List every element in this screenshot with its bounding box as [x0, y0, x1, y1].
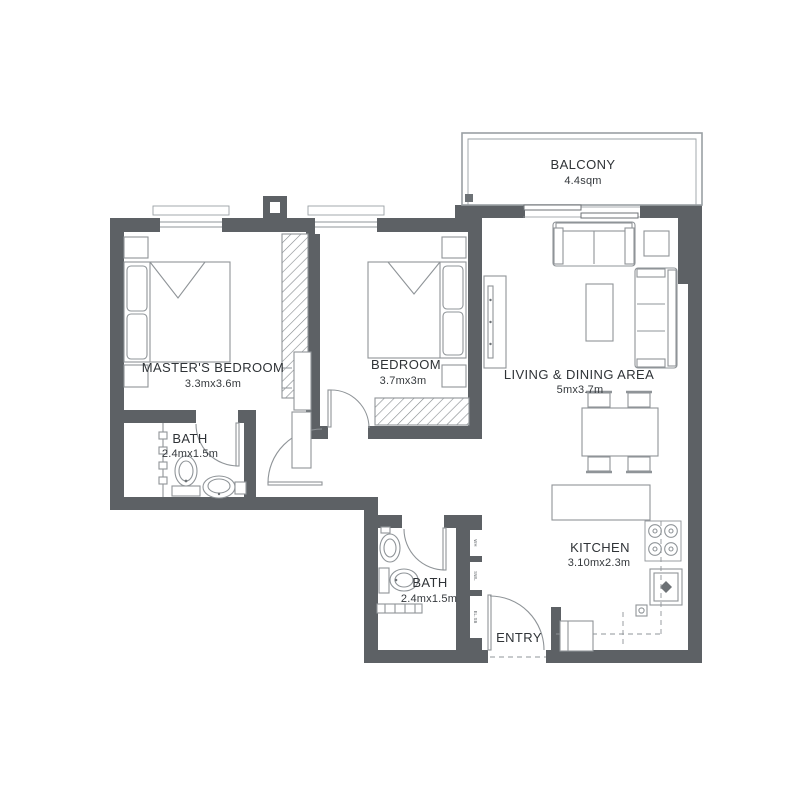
living-dining-size: 5mx3.7m [557, 384, 604, 396]
kitchen-size: 3.10mx2.3m [568, 557, 631, 569]
entry-door-swing [488, 595, 546, 657]
bath1-label: BATH [172, 431, 207, 446]
small-appliance [636, 605, 647, 616]
kitchen-sink-fixture [650, 569, 682, 605]
bedroom-wardrobe [375, 398, 469, 425]
utility-niches: WH SWL EL.SB [470, 530, 482, 638]
bedroom-label: BEDROOM [371, 357, 441, 372]
kitchen-label: KITCHEN [570, 540, 630, 555]
utility-label-1: WH [473, 539, 478, 546]
window-sill [153, 206, 229, 215]
two-seat-sofa [553, 222, 635, 266]
dining-chair [626, 392, 652, 407]
dining-set [582, 392, 658, 472]
sink-fixture [380, 527, 400, 562]
balcony-drain [465, 194, 473, 202]
floor-plan-canvas: WH SWL EL.SB [0, 0, 800, 800]
side-table [644, 231, 669, 256]
balcony-sliding-door [523, 205, 640, 218]
balcony-label: BALCONY [551, 157, 616, 172]
refrigerator [560, 621, 593, 651]
nightstand [442, 237, 466, 258]
window-sill [308, 206, 384, 215]
bath2-label: BATH [412, 575, 447, 590]
utility-label-2: SWL [473, 571, 478, 581]
toilet-fixture [172, 456, 200, 496]
stove-fixture [645, 521, 681, 561]
tv-unit [484, 276, 506, 368]
bedroom-window [315, 216, 377, 234]
bedroom-door-swing [328, 390, 369, 428]
nightstand [442, 365, 466, 387]
three-seat-sofa [635, 268, 677, 368]
dining-table [582, 408, 658, 456]
master-bedroom-label: MASTER'S BEDROOM [142, 360, 285, 375]
master-bedroom-furniture [124, 234, 311, 468]
bedroom-size: 3.7mx3m [380, 375, 427, 387]
bath2-size: 2.4mx1.5m [401, 593, 457, 605]
bath2-door-swing [404, 528, 446, 570]
bath1-size: 2.4mx1.5m [162, 448, 218, 460]
living-furniture [484, 222, 677, 368]
dining-chair [586, 457, 612, 472]
sink-fixture [203, 476, 246, 498]
dining-chair [626, 457, 652, 472]
balcony-size: 4.4sqm [564, 175, 601, 187]
master-bedroom-size: 3.3mx3.6m [185, 378, 241, 390]
entry-label: ENTRY [496, 630, 542, 645]
kitchen-counter [552, 485, 650, 520]
vent-grille [377, 604, 422, 613]
dresser [294, 352, 311, 410]
nightstand [124, 237, 148, 258]
living-dining-label: LIVING & DINING AREA [504, 367, 654, 382]
master-bed [124, 262, 230, 362]
utility-label-3: EL.SB [473, 611, 478, 624]
bedroom-bed [368, 262, 466, 358]
bedroom-furniture [368, 237, 469, 425]
coffee-table [586, 284, 613, 341]
master-bedroom-window [160, 216, 222, 234]
cabinet [292, 412, 311, 468]
floor-plan: WH SWL EL.SB [0, 0, 800, 800]
